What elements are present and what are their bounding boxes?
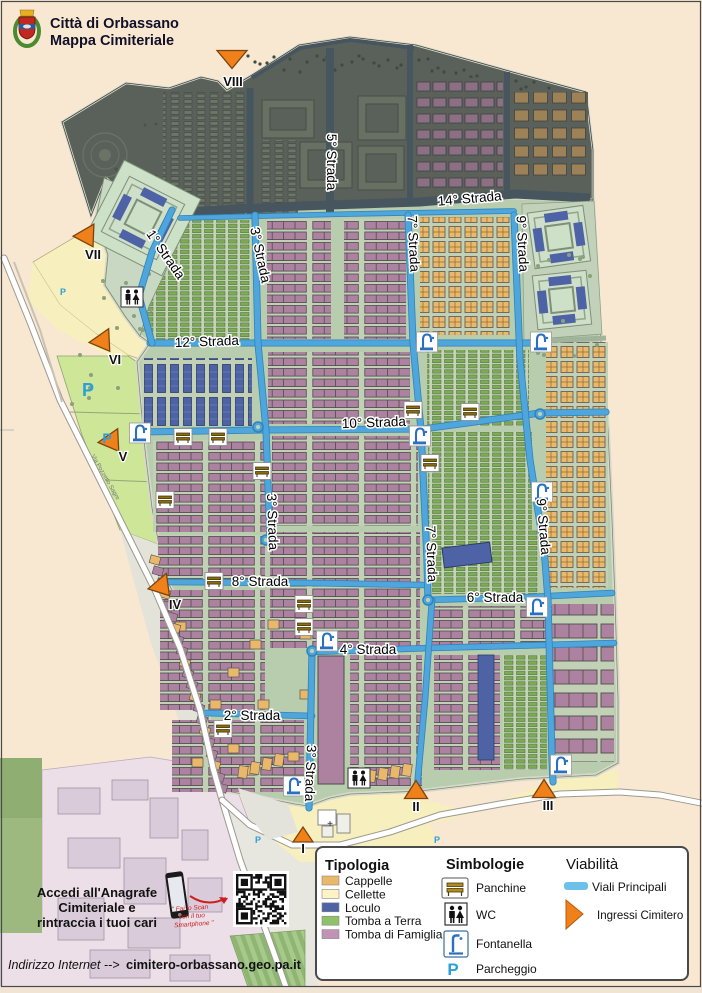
svg-text:Cellette: Cellette [345, 887, 386, 901]
svg-text:P: P [447, 960, 458, 979]
svg-text:P: P [82, 380, 94, 400]
svg-text:4° Strada: 4° Strada [340, 642, 397, 657]
svg-text:Loculo: Loculo [345, 901, 381, 915]
svg-text:cimitero-orbassano.geo.pa.it: cimitero-orbassano.geo.pa.it [126, 957, 302, 972]
svg-text:Viabilità: Viabilità [566, 856, 619, 873]
svg-text:Accedi all'Anagrafe: Accedi all'Anagrafe [37, 885, 157, 900]
svg-text:Cimiteriale e: Cimiteriale e [58, 900, 135, 915]
svg-text:Cappelle: Cappelle [345, 874, 393, 888]
svg-text:7° Strada: 7° Strada [423, 525, 440, 582]
svg-text:9° Strada: 9° Strada [514, 215, 532, 273]
svg-text:P: P [102, 430, 111, 446]
svg-text:Indirizzo Internet -->: Indirizzo Internet --> [8, 958, 120, 972]
svg-text:V: V [119, 449, 128, 464]
svg-text:8° Strada: 8° Strada [232, 574, 289, 589]
svg-text:P: P [255, 835, 261, 845]
svg-text:III: III [543, 798, 554, 813]
svg-text:6° Strada: 6° Strada [467, 590, 524, 605]
svg-text:Simbologie: Simbologie [446, 857, 524, 873]
svg-text:10° Strada: 10° Strada [342, 414, 407, 431]
svg-text:Tomba di Famiglia: Tomba di Famiglia [345, 928, 443, 942]
svg-text:Parcheggio: Parcheggio [476, 962, 537, 976]
svg-text:I: I [301, 841, 305, 856]
svg-text:3° Strada: 3° Strada [264, 493, 281, 550]
svg-text:Mappa Cimiteriale: Mappa Cimiteriale [50, 33, 174, 49]
svg-text:Tomba a Terra: Tomba a Terra [345, 914, 422, 928]
svg-text:VIII: VIII [223, 74, 243, 89]
svg-text:rintraccia i tuoi cari: rintraccia i tuoi cari [37, 915, 157, 930]
svg-text:P: P [60, 287, 66, 297]
svg-text:Panchine: Panchine [476, 881, 526, 895]
svg-text:Viali Principali: Viali Principali [592, 880, 666, 894]
svg-text:P: P [434, 835, 440, 845]
svg-text:7° Strada: 7° Strada [405, 215, 423, 273]
svg-text:VI: VI [109, 352, 121, 367]
svg-text:IV: IV [169, 597, 182, 612]
svg-text:5° Strada: 5° Strada [324, 134, 339, 191]
svg-text:VII: VII [85, 247, 101, 262]
svg-text:WC: WC [476, 908, 496, 922]
svg-text:+: + [327, 819, 333, 830]
svg-text:2° Strada: 2° Strada [224, 708, 281, 723]
svg-text:3° Strada: 3° Strada [302, 745, 319, 802]
svg-text:Tipologia: Tipologia [325, 858, 390, 874]
svg-text:II: II [412, 799, 419, 814]
svg-text:Città di Orbassano: Città di Orbassano [50, 16, 179, 32]
svg-text:12° Strada: 12° Strada [175, 333, 240, 350]
svg-text:Ingressi Cimitero: Ingressi Cimitero [597, 910, 683, 922]
svg-text:Fontanella: Fontanella [476, 937, 532, 951]
